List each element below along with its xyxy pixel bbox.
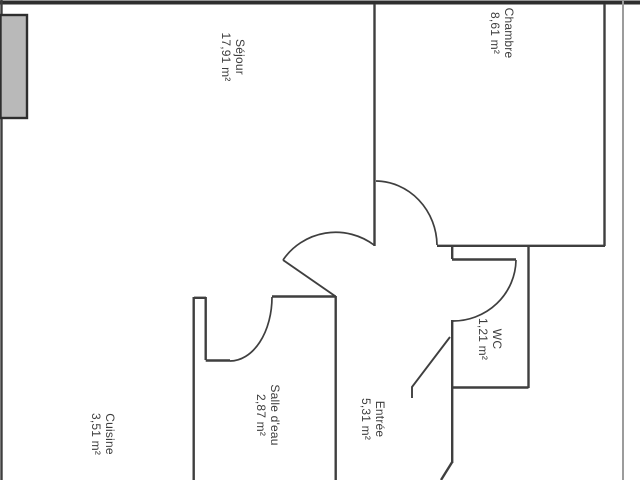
room-area-salle-deau: 2,87 m² (254, 384, 268, 445)
room-label-cuisine: Cuisine 3,51 m² (89, 413, 117, 455)
door-arc-sejour (283, 232, 374, 260)
room-label-entree: Entrée 5,31 m² (359, 398, 387, 440)
room-area-sejour: 17,91 m² (219, 33, 233, 82)
room-label-chambre: Chambre 8,61 m² (488, 8, 516, 59)
room-area-wc: 1,21 m² (476, 318, 490, 360)
room-area-entree: 5,31 m² (359, 398, 373, 440)
sejour-door-leaf (283, 260, 335, 296)
wall-entree-bottom-chamfer (441, 462, 452, 480)
room-label-sejour: Séjour 17,91 m² (219, 33, 247, 82)
entrance-door-leaf (412, 337, 450, 398)
door-arc-chambre (376, 181, 437, 245)
room-area-cuisine: 3,51 m² (89, 413, 103, 455)
room-name-chambre: Chambre (502, 8, 516, 59)
room-label-wc: WC 1,21 m² (476, 318, 504, 360)
room-name-wc: WC (490, 318, 504, 360)
room-name-salle-deau: Salle d'eau (268, 384, 282, 445)
room-name-cuisine: Cuisine (103, 413, 117, 455)
room-label-salle-deau: Salle d'eau 2,87 m² (254, 384, 282, 445)
room-name-sejour: Séjour (233, 33, 247, 82)
room-name-entree: Entrée (373, 398, 387, 440)
door-arc-salledeau (230, 297, 272, 361)
room-area-chambre: 8,61 m² (488, 8, 502, 59)
balcony-block (1, 15, 28, 118)
door-arc-wc (452, 260, 516, 321)
floorplan-drawing (0, 0, 640, 480)
floorplan-screenshot: Séjour 17,91 m² Chambre 8,61 m² WC 1,21 … (0, 0, 640, 480)
